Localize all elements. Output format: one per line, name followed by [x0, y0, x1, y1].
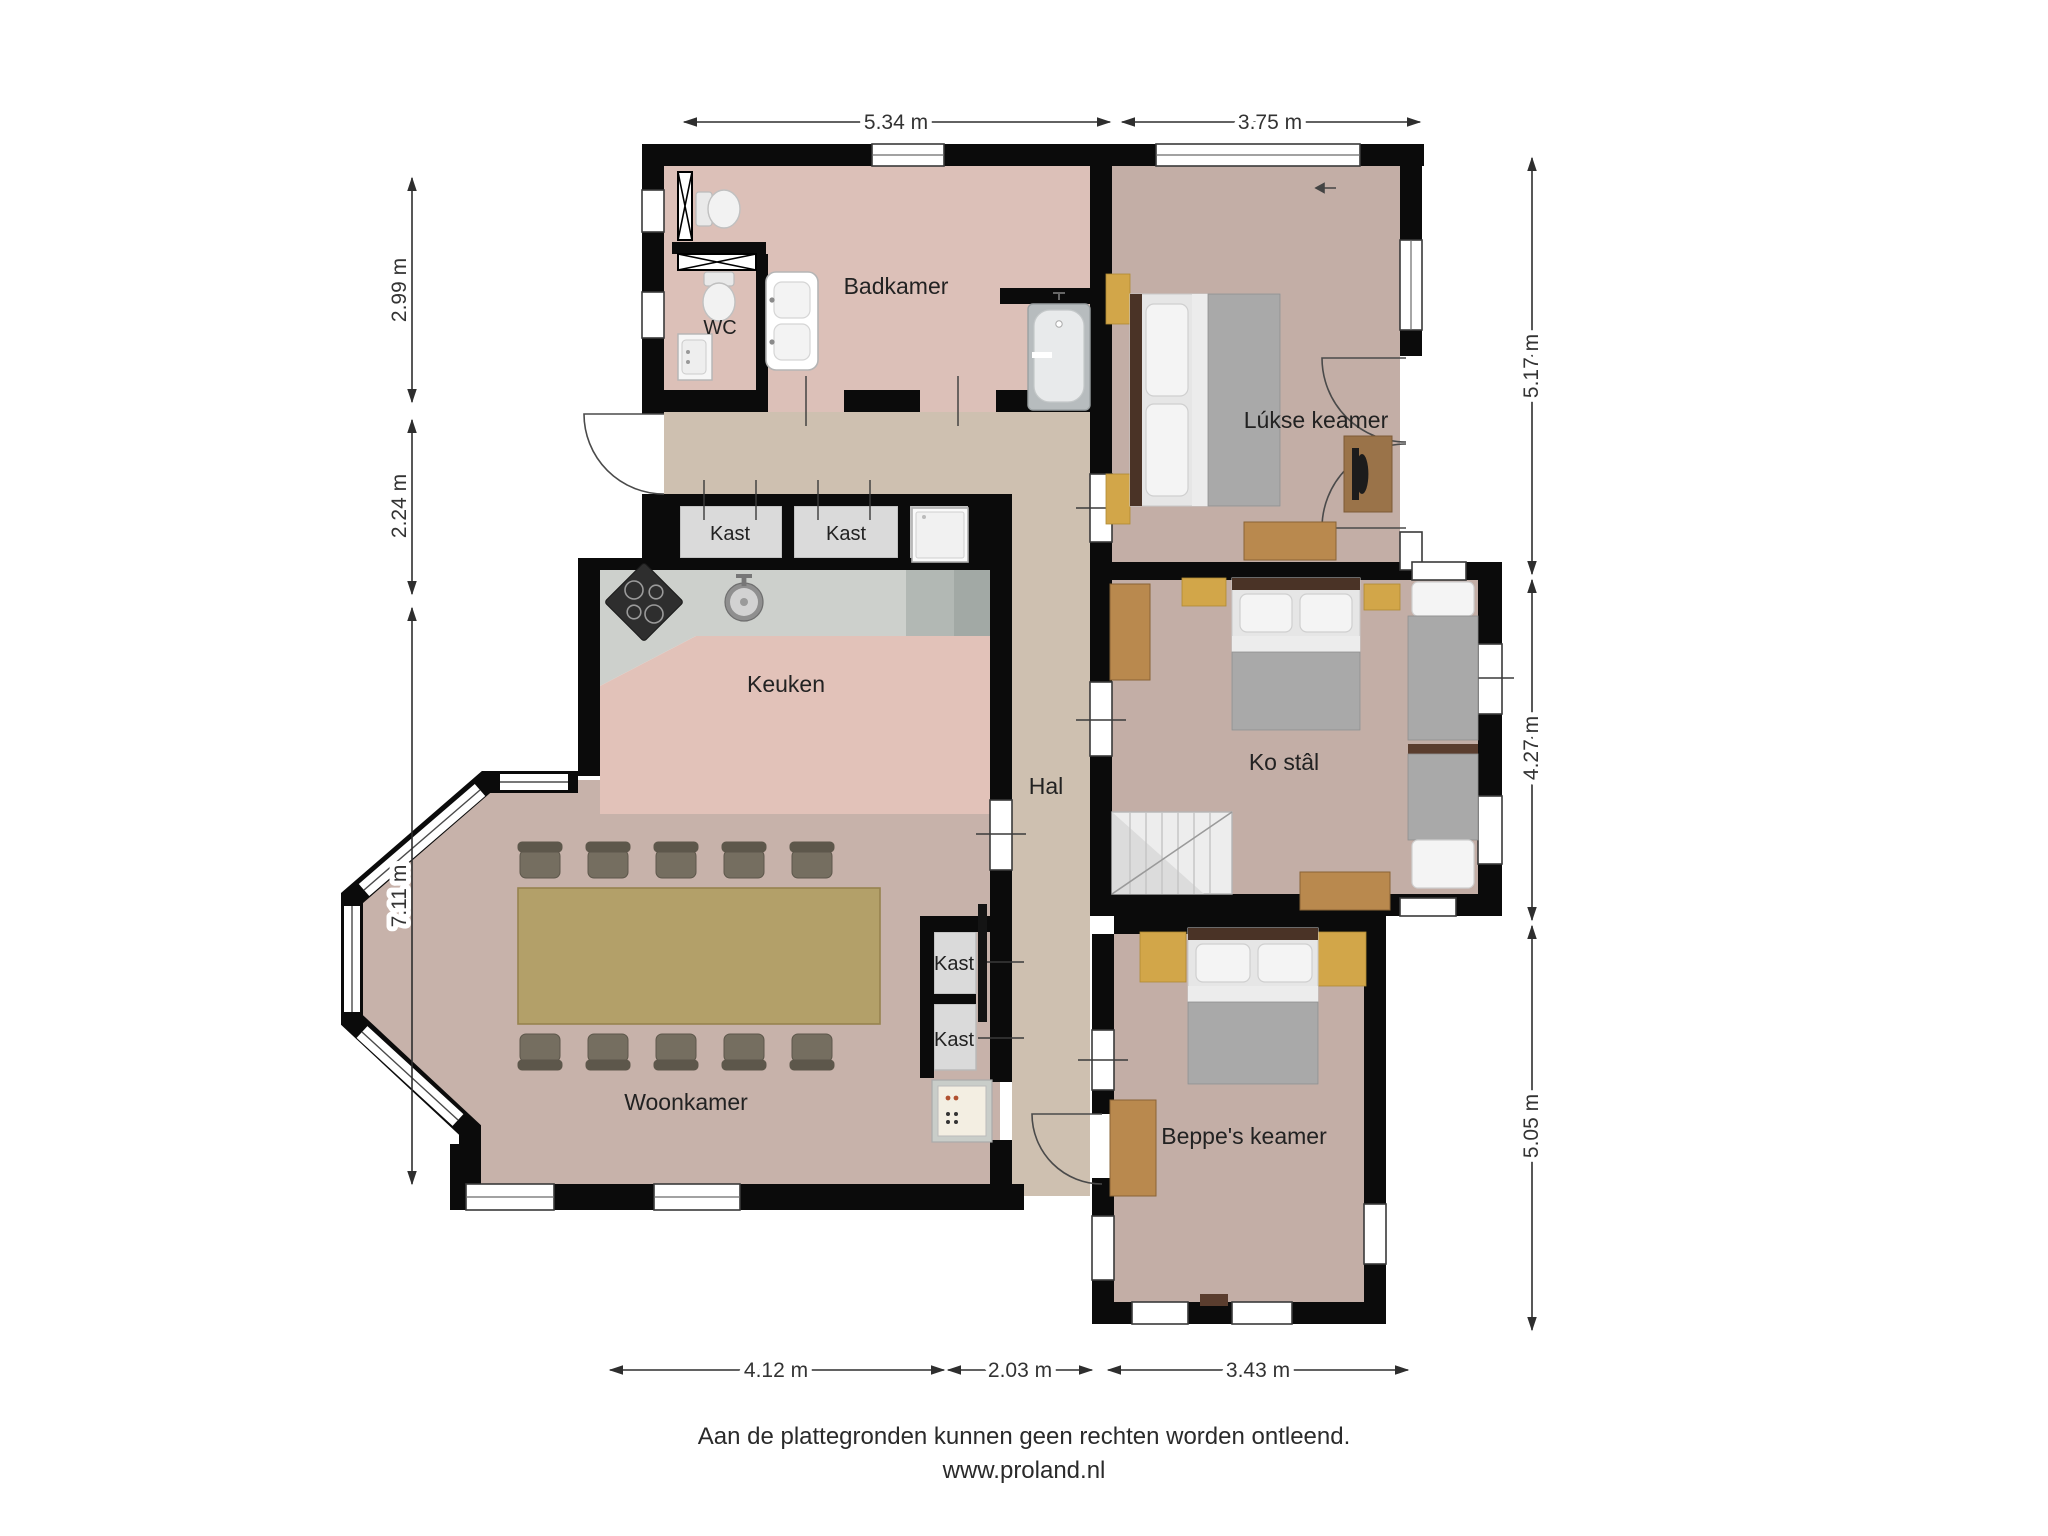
- bathtub-icon: [1028, 292, 1090, 410]
- dim-bottom-2: 2.03 m: [988, 1359, 1052, 1382]
- entry-door-arc: [584, 414, 664, 494]
- kitchen-floor: [600, 636, 1000, 814]
- room-label-kast1: Kast: [710, 523, 750, 545]
- room-label-kast3: Kast: [934, 953, 974, 975]
- desk: [1110, 584, 1150, 680]
- floorplan-drawing: Badkamer WC Kast Kast Keuken Hal Lúkse k…: [0, 0, 2048, 1536]
- floorplan-page: Badkamer WC Kast Kast Keuken Hal Lúkse k…: [0, 0, 2048, 1536]
- kitchen-counter-appliance: [906, 570, 954, 636]
- utility-cabinet: [932, 1080, 992, 1142]
- toilet-icon: [696, 190, 740, 228]
- table: [1300, 872, 1390, 910]
- nightstand: [1106, 474, 1130, 524]
- hall-upper-floor: [664, 412, 1090, 494]
- double-bed: [1188, 928, 1318, 1084]
- dim-right-2: 4.27 m: [1520, 716, 1543, 780]
- desk-with-monitor: [1344, 436, 1392, 512]
- hall-corridor-floor: [1012, 494, 1090, 1196]
- double-bed: [1130, 294, 1280, 506]
- room-label-ko-stal: Ko stâl: [1249, 749, 1319, 775]
- wc-toilet-icon: [703, 272, 735, 321]
- double-bed: [1232, 578, 1360, 730]
- bench: [1244, 522, 1336, 560]
- room-label-lukse-keamer: Lúkse keamer: [1244, 407, 1389, 433]
- room-label-woonkamer: Woonkamer: [624, 1089, 748, 1115]
- dining-table: [518, 888, 880, 1024]
- dim-top-2: 3.75 m: [1238, 111, 1302, 134]
- dim-left-2: 2.24 m: [388, 474, 411, 538]
- rug: [1364, 584, 1400, 610]
- nightstand: [1106, 274, 1130, 324]
- room-label-badkamer: Badkamer: [844, 273, 949, 299]
- dim-bottom-3: 3.43 m: [1226, 1359, 1290, 1382]
- room-label-kast4: Kast: [934, 1029, 974, 1051]
- room-label-wc: WC: [703, 317, 736, 339]
- room-label-beppes-keamer: Beppe's keamer: [1161, 1123, 1327, 1149]
- footer-website: www.proland.nl: [942, 1457, 1106, 1484]
- room-label-keuken: Keuken: [747, 671, 825, 697]
- dim-left-3: 7.11 m: [388, 865, 411, 928]
- fridge-icon: [912, 508, 968, 562]
- double-sink-icon: [766, 272, 818, 370]
- dim-bottom-1: 4.12 m: [744, 1359, 808, 1382]
- room-label-kast2: Kast: [826, 523, 866, 545]
- footer-disclaimer: Aan de plattegronden kunnen geen rechten…: [698, 1423, 1351, 1450]
- desk: [1110, 1100, 1156, 1196]
- dim-left-1: 2.99 m: [388, 258, 411, 322]
- single-beds: [1408, 582, 1478, 888]
- threshold: [1200, 1294, 1228, 1306]
- rug: [1182, 578, 1226, 606]
- dim-top-1: 5.34 m: [864, 111, 928, 134]
- nightstand: [1140, 932, 1186, 982]
- dim-right-1: 5.17 m: [1520, 334, 1543, 398]
- tv-icon: [978, 904, 987, 1022]
- stairs-icon: [1112, 812, 1232, 894]
- room-label-hal: Hal: [1029, 773, 1064, 799]
- floors: [352, 166, 1478, 1324]
- wc-washbasin-icon: [678, 334, 712, 380]
- nightstand: [1316, 932, 1366, 986]
- footer: Aan de plattegronden kunnen geen rechten…: [698, 1423, 1351, 1484]
- dim-right-3: 5.05 m: [1520, 1094, 1543, 1158]
